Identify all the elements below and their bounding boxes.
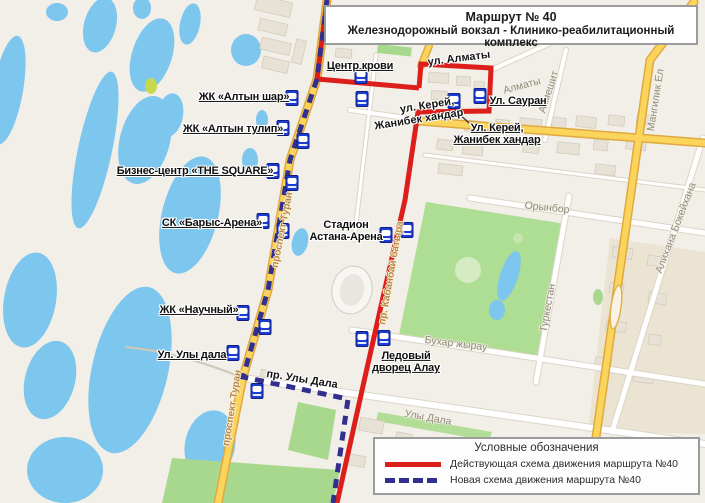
legend-item-current: Действующая схема движения маршрута №40	[385, 458, 698, 470]
new-route-line-sample	[385, 478, 441, 483]
street-name-label: Мангилик Ел	[646, 68, 666, 132]
stop-name-label: ЖК «Алтын шар»	[199, 91, 290, 103]
legend-item-label: Новая схема движения маршрута №40	[450, 474, 641, 486]
route-subtitle: Железнодорожный вокзал - Клинико-реабили…	[326, 25, 696, 49]
street-name-label: Алматы	[502, 76, 542, 96]
map-overlay: ул. Алматыул. Керей,Жанибек хандарпр. Ул…	[0, 0, 705, 503]
stop-name-label: Ул. Керей, Жанибек хандар	[454, 122, 541, 146]
legend-box: Условные обозначения Действующая схема д…	[373, 437, 700, 495]
stop-name-label: Ледовый дворец Алау	[372, 350, 440, 374]
route-title: Маршрут № 40	[326, 10, 696, 24]
stop-name-label: Ул. Улы дала	[158, 349, 227, 361]
bus-stop-icon	[286, 175, 299, 191]
street-name-label: проспект Туран	[222, 369, 244, 446]
street-name-label: проспект Туран	[271, 191, 295, 268]
bus-stop-icon	[474, 88, 487, 104]
bus-stop-icon	[251, 383, 264, 399]
street-name-label: пр. Улы Дала	[266, 369, 339, 391]
bus-stop-icon	[227, 345, 240, 361]
legend-title: Условные обозначения	[375, 442, 698, 454]
bus-stop-icon	[356, 331, 369, 347]
stop-name-label: ЖК «Научный»	[160, 304, 239, 316]
bus-stop-icon	[356, 91, 369, 107]
current-route-line-sample	[385, 462, 441, 467]
bus-stop-icon	[297, 133, 310, 149]
street-name-label: Улы Дала	[404, 409, 453, 428]
legend-item-new: Новая схема движения маршрута №40	[385, 474, 698, 486]
street-name-label: Туркестан	[539, 283, 558, 333]
route-title-box: Маршрут № 40 Железнодорожный вокзал - Кл…	[324, 5, 698, 45]
map-canvas: ул. Алматыул. Керей,Жанибек хандарпр. Ул…	[0, 0, 705, 503]
bus-stop-icon	[378, 330, 391, 346]
stop-name-label: Стадион Астана-Арена	[310, 219, 383, 243]
stop-name-label: Бизнес-центр «THE SQUARE»	[117, 165, 274, 177]
street-name-label: Орынбор	[524, 200, 570, 215]
street-name-label: ул. Алматы	[427, 50, 491, 69]
stop-name-label: Ул. Сауран	[490, 95, 547, 107]
street-name-label: Акмешит	[537, 70, 561, 115]
stop-name-label: СК «Барыс-Арена»	[162, 217, 262, 229]
bus-stop-icon	[259, 319, 272, 335]
stop-name-label: Центр крови	[327, 60, 393, 72]
stop-name-label: ЖК «Алтын тулип»	[183, 123, 283, 135]
legend-item-label: Действующая схема движения маршрута №40	[450, 458, 678, 470]
street-name-label: Алихана Бокейхана	[654, 181, 698, 275]
